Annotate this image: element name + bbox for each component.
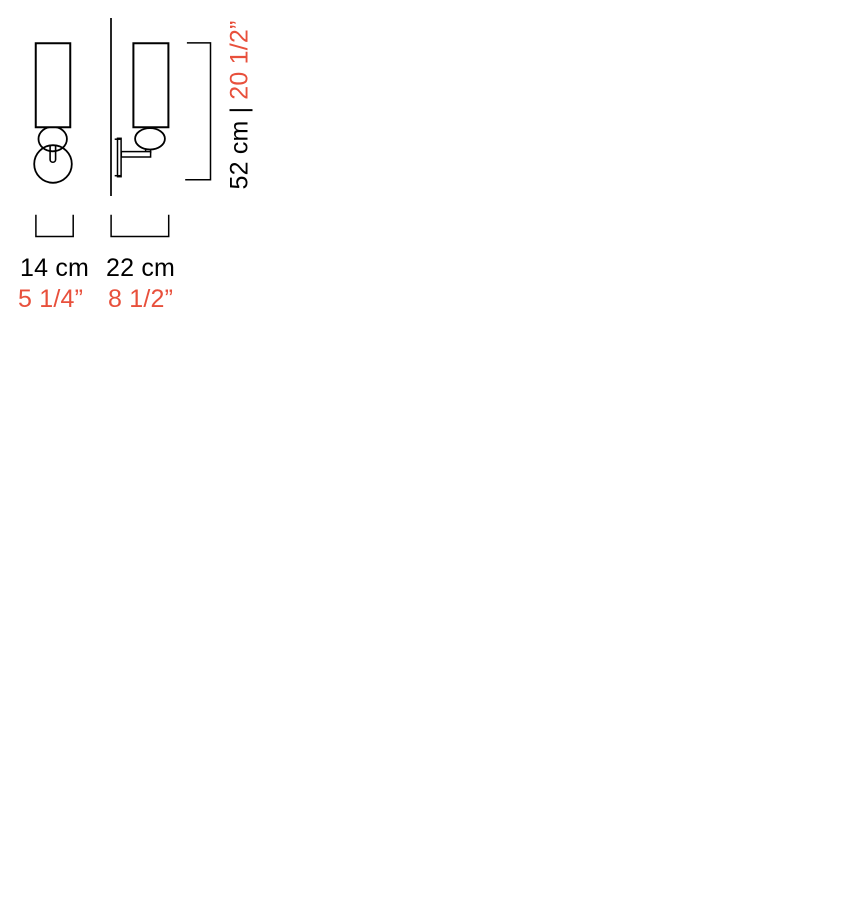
lamp-side-view-drawing — [111, 18, 168, 196]
height-dimension-label: 52 cm|20 1/2” — [228, 20, 253, 189]
side-projection-metric-label: 22 cm — [106, 256, 175, 281]
height-imperial-value: 20 1/2” — [226, 20, 254, 99]
front-width-imperial-label: 5 1/4” — [18, 287, 83, 312]
front-width-bracket — [36, 215, 73, 237]
front-width-metric-label: 14 cm — [20, 256, 89, 281]
side-projection-bracket — [111, 215, 169, 237]
lamp-line-drawing — [0, 0, 300, 260]
side-projection-imperial-label: 8 1/2” — [108, 287, 173, 312]
height-metric-value: 52 cm — [226, 120, 254, 189]
mounting-arm-outline — [121, 152, 150, 157]
bulb-stem-outline — [50, 146, 56, 163]
side-socket-ball-outline — [135, 128, 165, 149]
lamp-dimension-diagram: 52 cm|20 1/2” 14 cm 22 cm 5 1/4” 8 1/2” — [0, 0, 856, 900]
height-separator: | — [226, 100, 254, 121]
side-shade-outline — [133, 43, 168, 127]
lamp-front-view-drawing — [34, 43, 72, 183]
wall-plate-outline — [118, 138, 122, 176]
front-shade-outline — [36, 43, 71, 127]
height-dimension-bracket — [185, 43, 210, 180]
